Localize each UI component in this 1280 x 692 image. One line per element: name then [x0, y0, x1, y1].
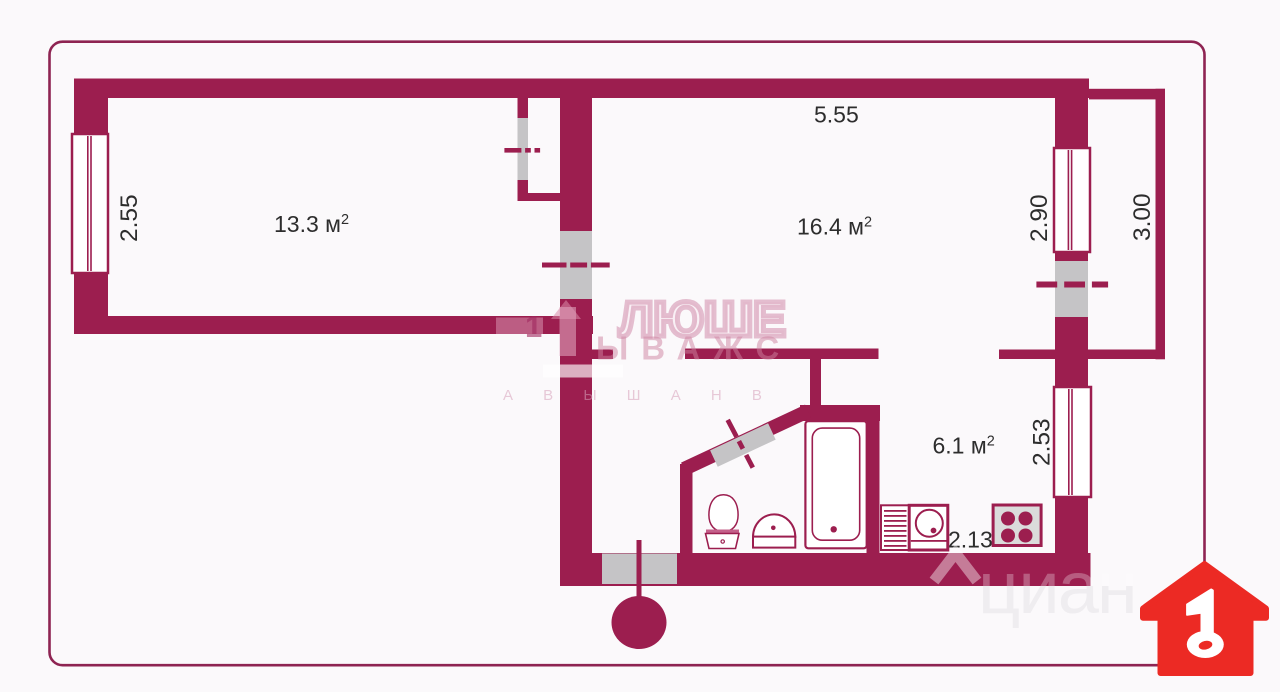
svg-text:13.3 м2: 13.3 м2: [274, 211, 349, 237]
svg-text:5.55: 5.55: [814, 102, 859, 128]
svg-text:2.55: 2.55: [116, 194, 143, 242]
svg-text:2.53: 2.53: [1029, 418, 1056, 466]
svg-text:16.4 м2: 16.4 м2: [797, 214, 872, 240]
svg-text:1: 1: [525, 309, 542, 344]
svg-text:ЫВАЖС: ЫВАЖС: [596, 330, 792, 367]
svg-text:6.1 м2: 6.1 м2: [933, 433, 995, 459]
svg-text:3.00: 3.00: [1129, 193, 1156, 241]
svg-text:А В Ы Ш А Н В: А В Ы Ш А Н В: [503, 387, 775, 404]
svg-text:2.90: 2.90: [1026, 194, 1053, 242]
